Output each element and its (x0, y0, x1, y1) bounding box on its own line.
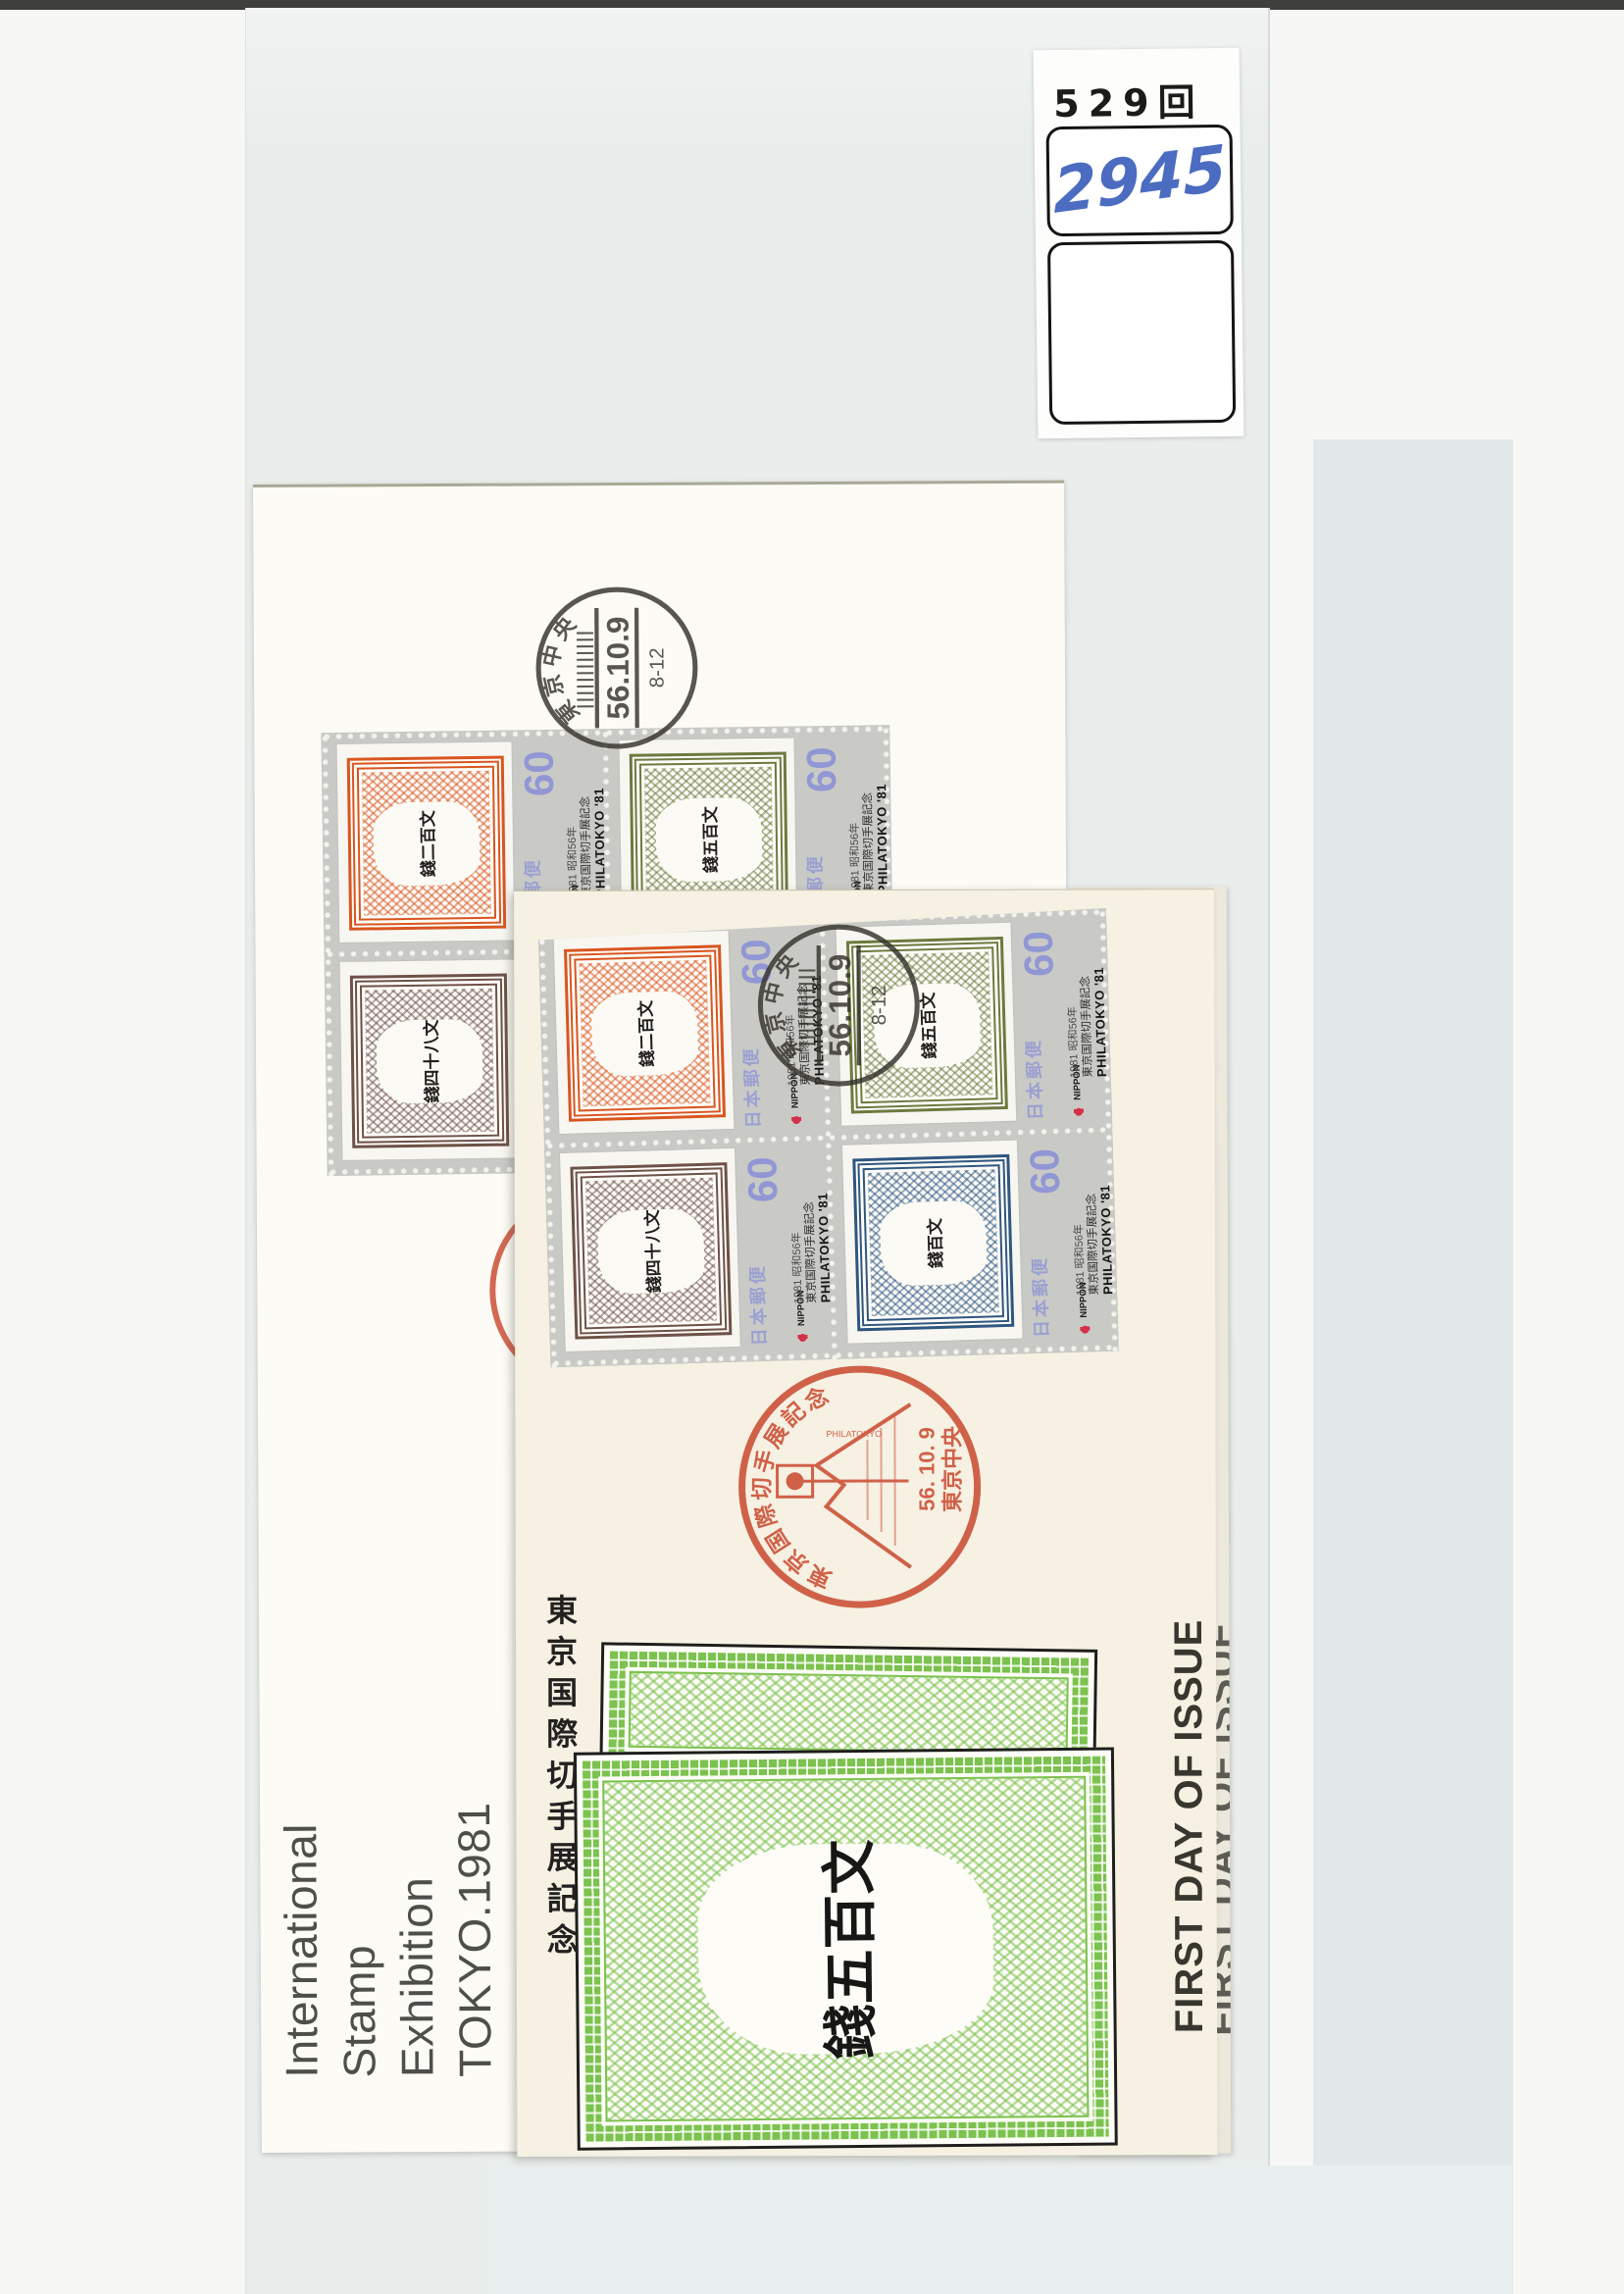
stamp-center-panel: 錢二百文 (373, 800, 480, 885)
first-day-of-issue-text: FIRST DAY OF ISSUE (1167, 1572, 1212, 2033)
stamp-denomination-kanji: 錢四十八文 (417, 1019, 442, 1102)
stamp-center-panel: 錢四十八文 (597, 1207, 705, 1294)
cachet-center-kanji: 錢五百文 (805, 1839, 887, 2060)
cachet-dragon-art (629, 1671, 1069, 1755)
stamp-value-60: 60 (1021, 1145, 1069, 1195)
stamp-denomination-kanji: 錢二百文 (414, 810, 439, 877)
stamp-value-60: 60 (738, 1152, 787, 1202)
cachet-inner: 錢五百文 (598, 1772, 1092, 2126)
handwritten-number: 2945 (1052, 132, 1228, 229)
scanned-photo-canvas: 錢二百文 60 1981 昭和56年 東京国際切手展記念 PHILATOKYO … (0, 0, 1624, 2294)
stamp-nippon-group: NIPPON (795, 1280, 808, 1345)
caption-line-1: International (271, 1617, 330, 2078)
stamp-nippon-group: NIPPON (1078, 1272, 1091, 1337)
philatokyo-logo-icon (1080, 1321, 1090, 1337)
stamp-white-panel: 錢四十八文 (340, 959, 518, 1159)
classic-dragon-stamp: 錢二百文 (347, 756, 506, 931)
datestamp-office-text: 東京中央 (760, 945, 806, 1065)
red-commemorative-cancel: 東京国際切手展記念 PHILATOKYO 56. 10. 9 東京中央 (732, 1359, 988, 1615)
stamp-white-panel: 錢百文 (842, 1141, 1023, 1344)
stamp-white-panel: 錢二百文 (337, 741, 515, 942)
stamp-center-panel: 錢百文 (880, 1199, 988, 1286)
stamp-denomination-kanji: 錢二百文 (632, 999, 658, 1067)
label-number-box: 2945 (1046, 125, 1234, 236)
stamp-nippon-group: NIPPON (1071, 1054, 1084, 1119)
label-empty-box (1047, 240, 1236, 425)
svg-text:東京中央: 東京中央 (760, 945, 806, 1065)
cachet-stamp-repro-front: 錢五百文 (574, 1747, 1118, 2150)
stamp-country-text: NIPPON (795, 1290, 807, 1326)
caption-line-4: TOKYO.1981 (444, 1616, 504, 2077)
cancel-date-text: 56. 10. 9 (914, 1427, 939, 1511)
classic-dragon-stamp: 錢四十八文 (350, 974, 509, 1148)
stamp-nippon-yubin-text: 日本郵便 (1020, 1032, 1048, 1121)
stamp-unit-brown-48mon: 錢四十八文 60 1981 昭和56年 東京国際切手展記念 PHILATOKYO… (554, 1142, 831, 1357)
datestamp-time-text: 8-12 (869, 986, 890, 1026)
stamp-white-panel: 錢四十八文 (560, 1148, 740, 1351)
exhibition-number-text: 529回 (1053, 72, 1241, 127)
dealer-label-card: 529回 2945 (1034, 48, 1244, 439)
stamp-denomination-kanji: 錢百文 (921, 1217, 946, 1268)
sleeve-backing-tint (1313, 439, 1513, 2294)
stamp-country-text: NIPPON (1078, 1282, 1090, 1318)
cachet-side-caption: 東京国際切手展記念 (539, 1594, 584, 2084)
stamp-denomination-kanji: 錢五百文 (696, 805, 722, 872)
datestamp-office-text: 東京中央 (537, 608, 584, 728)
cachet-center-panel: 錢五百文 (697, 1843, 994, 2056)
stamp-value-60: 60 (1015, 927, 1063, 977)
cancel-small-text: PHILATOKYO (826, 1429, 882, 1439)
caption-line-2: Stamp (329, 1616, 388, 2077)
datestamp-date-text: 56.10.9 (823, 954, 857, 1057)
datestamp-date-text: 56.10.9 (601, 617, 636, 720)
classic-dragon-stamp: 錢百文 (852, 1154, 1014, 1332)
philatokyo-logo-icon (1073, 1103, 1083, 1119)
svg-text:東京中央: 東京中央 (537, 608, 584, 728)
stamp-nippon-yubin-text: 日本郵便 (1026, 1249, 1054, 1339)
caption-line-3: Exhibition (386, 1616, 446, 2077)
stamp-brand-line: PHILATOKYO '81 (592, 744, 608, 897)
stamp-center-panel: 錢五百文 (655, 796, 762, 881)
stamp-value-60: 60 (798, 743, 846, 793)
stamp-country-text: NIPPON (1072, 1064, 1084, 1100)
classic-dragon-stamp: 錢二百文 (564, 944, 726, 1122)
philatokyo-logo-icon (797, 1329, 807, 1345)
cachet-inner (625, 1667, 1073, 1759)
stamp-brand-line: PHILATOKYO '81 (875, 740, 890, 893)
stamp-nippon-yubin-text: 日本郵便 (743, 1257, 772, 1347)
black-datestamp-lower: 東京中央 56.10.9 8-12 (755, 922, 922, 1089)
cancel-office-text: 東京中央 (939, 1425, 964, 1512)
lower-first-day-cover: 錢二百文 60 1981 昭和56年 東京国際切手展記念 PHILATOKYO … (514, 889, 1217, 2157)
classic-dragon-stamp: 錢四十八文 (570, 1162, 732, 1340)
stamp-unit-blue-100mon: 錢百文 60 1981 昭和56年 東京国際切手展記念 PHILATOKYO '… (837, 1134, 1113, 1350)
sleeve-bottom-tint (492, 2166, 1512, 2294)
stamp-denomination-kanji: 錢四十八文 (637, 1209, 664, 1294)
stamp-value-60: 60 (516, 747, 564, 797)
stamp-center-panel: 錢二百文 (590, 990, 698, 1076)
philatokyo-logo-icon (790, 1111, 800, 1127)
black-datestamp-upper: 東京中央 56.10.9 8-12 (533, 585, 701, 752)
stamp-white-panel: 錢二百文 (554, 931, 735, 1134)
exhibition-caption: International Stamp Exhibition TOKYO.198… (271, 1616, 504, 2078)
datestamp-time-text: 8-12 (646, 647, 668, 688)
stamp-center-panel: 錢四十八文 (377, 1018, 483, 1102)
